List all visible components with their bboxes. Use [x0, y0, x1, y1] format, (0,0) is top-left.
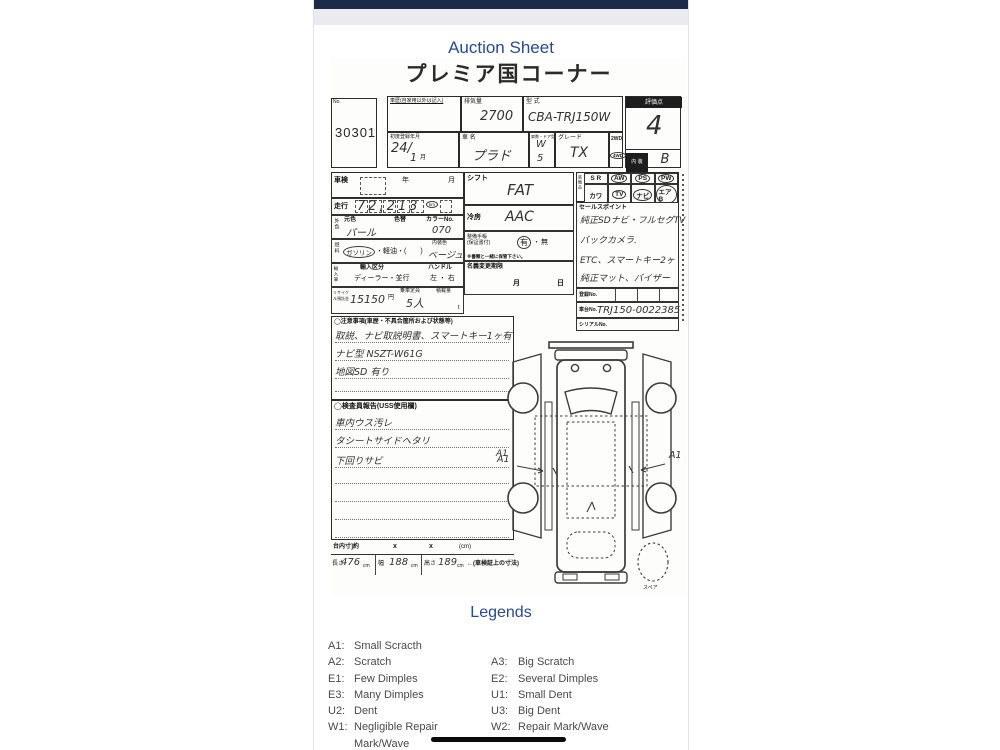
ac-label: 冷房: [467, 214, 481, 222]
legend-label: Repair Mark/Wave: [518, 719, 680, 750]
diagram-right-mark: A1: [669, 450, 682, 461]
warranty-no-option: 無: [541, 239, 548, 247]
diagram-left-mark: A1: [497, 454, 510, 465]
equipment-cells: S R AW PS PW カワ TV ナビ エアB: [584, 173, 678, 201]
registration-no-label: 登録No.: [579, 293, 597, 299]
capacity-label: 乗車定員: [400, 289, 420, 295]
equipment-grid: 装備品 S R AW PS PW カワ TV ナビ エアB: [576, 172, 679, 202]
notes-line: 地図SD 有り: [335, 364, 509, 379]
left-rear-wheel: [508, 483, 538, 513]
divider: [615, 289, 616, 301]
dim-cm-label: (cm): [459, 544, 471, 551]
equip-ps-label: PS: [635, 174, 650, 183]
shift-label: シフト: [467, 175, 488, 183]
base-color-value: パール: [346, 224, 376, 239]
auction-no-box: No. 30301: [331, 98, 377, 168]
legend-code: E1:: [328, 671, 354, 687]
inspection-year-label: 年: [402, 177, 409, 185]
displacement-value: 2700: [480, 109, 513, 124]
legend-code: E2:: [491, 671, 518, 687]
history-cell: 車歴(自家用以外は記入): [387, 96, 461, 132]
legend-label: Many Dimples: [354, 687, 477, 703]
dim-x1: x: [393, 543, 397, 551]
front-bumper: [555, 350, 627, 360]
legend-label: [518, 638, 680, 654]
chassis-no-label: 車台No.: [579, 308, 597, 314]
dimensions-area: 台内寸]約 x x (cm) 長さ 476 cm 幅 188 cm 高さ 189…: [331, 542, 514, 582]
color-change-label: 色替: [394, 217, 406, 224]
odometer-value: 72,213: [357, 199, 421, 214]
page-title: Auction Sheet: [314, 38, 688, 58]
warranty-note: ※書類と一緒に保管下さい。: [467, 254, 525, 260]
ton-label: t: [458, 305, 460, 312]
equip-sr-label: S R: [590, 175, 601, 182]
car-name-cell: 車 名 プラド: [459, 132, 529, 168]
divider: [375, 555, 376, 575]
odo-box: [440, 200, 452, 213]
width-unit: cm: [411, 564, 418, 570]
width-label: 幅: [378, 561, 384, 568]
legend-code: U2:: [328, 703, 354, 719]
grade-value: TX: [570, 145, 588, 161]
height-unit: cm: [457, 564, 464, 570]
interior-color-label: 内装色: [432, 241, 447, 247]
inspector-empty-line: [335, 523, 509, 538]
auction-sheet-scan: プレミア国コーナー No. 30301 車歴(自家用以外は記入) 排気量 270…: [331, 58, 687, 596]
sales-points-label: セールスポイント: [579, 205, 627, 212]
registration-no-cell: 登録No.: [576, 288, 679, 302]
interior-grade-label: 内 装: [626, 153, 648, 173]
legend-code: W1:: [328, 719, 354, 750]
drivetrain-4wd: 4WD: [610, 152, 626, 159]
legend-row: E1: Few Dimples E2: Several Dimples: [328, 671, 680, 687]
equip-pw: PW: [655, 173, 679, 184]
sales-points-box: セールスポイント 純正SDナビ・フルセグTV バックカメラ. ETC、スマートキ…: [576, 202, 679, 288]
sales-point-line: 純正マット、バイザー: [580, 271, 670, 284]
legend-label: Big Scratch: [518, 654, 680, 670]
transfer-day-label: 日: [557, 280, 564, 288]
first-registration-label: 初度登録年月: [390, 135, 420, 141]
legends-title: Legends: [314, 604, 688, 622]
transfer-month-label: 月: [513, 280, 520, 288]
legend-label: Scratch: [354, 654, 477, 670]
first-registration-month: 1: [410, 151, 417, 164]
screen: Auction Sheet プレミア国コーナー No. 30301 車歴(自家用…: [0, 0, 1000, 750]
right-sill: [632, 402, 639, 530]
history-label: 車歴(自家用以外は記入): [390, 99, 443, 105]
drivetrain-cell: 2WD 4WD: [609, 132, 623, 168]
load-label: 積載量: [436, 289, 451, 295]
fuel-other-options: ・軽油・( ): [376, 248, 423, 256]
door-type-n: 5: [537, 153, 543, 164]
shift-cell: シフト FAT: [464, 172, 574, 205]
color-no-value: 070: [432, 225, 451, 236]
odometer-cell: 走行 km 72,213: [331, 198, 464, 215]
auction-no-label: No.: [333, 100, 341, 106]
equip-aw-label: AW: [611, 174, 627, 183]
legend-row: U2: Dent U3: Big Dent: [328, 703, 680, 719]
legend-row: E3: Many Dimples U1: Small Dent: [328, 687, 680, 703]
import-type-label: 輸入区分: [360, 265, 384, 272]
inspector-empty-line: [335, 505, 509, 520]
ac-value: AAC: [505, 209, 534, 225]
grade-label: グレード: [558, 135, 582, 142]
notes-empty-line: [335, 379, 509, 392]
legend-code: A2:: [328, 654, 354, 670]
equip-sr: S R: [584, 173, 608, 184]
rear-mark: [587, 502, 595, 512]
color-no-label: カラーNo.: [426, 217, 454, 224]
notes-box: ◯注意事項(車歴・不具合箇所および状態等) 取説、ナビ取説明書、スマートキー1ヶ…: [331, 316, 514, 400]
interior-grade-row: 内 装 B: [626, 149, 680, 170]
car-name-value: プラド: [472, 145, 511, 164]
handle-options: 左 ・ 右: [430, 275, 455, 283]
margin-note: [682, 174, 684, 324]
serial-no-cell: シリアルNo.: [576, 318, 679, 331]
app-content-column: Auction Sheet プレミア国コーナー No. 30301 車歴(自家用…: [313, 0, 689, 750]
equip-navi-label: ナビ: [633, 189, 652, 201]
divider: [637, 289, 638, 301]
warranty-cell: 整備手帳 (保証書付) 有 ・ 無 ※書類と一緒に保管下さい。: [464, 231, 574, 261]
dim-x2: x: [429, 543, 433, 551]
recycle-cell: リサイクル預託金 15150 円 乗車定員 5人 積載量 t: [331, 287, 464, 314]
status-bar: [314, 0, 688, 9]
length-unit: cm: [363, 564, 370, 570]
right-front-wheel: [646, 383, 676, 413]
warranty-dot: ・: [533, 239, 540, 247]
legend-label: Several Dimples: [518, 671, 680, 687]
model-code-cell: 型 式 CBA-TRJ150W: [523, 96, 623, 132]
legend-code: U1:: [491, 687, 518, 703]
shift-value: FAT: [507, 181, 533, 199]
grade-cell: グレード TX: [555, 132, 609, 168]
right-arrow: [641, 464, 665, 470]
serial-no-label: シリアルNo.: [579, 323, 607, 329]
inspection-date-empty: [360, 177, 386, 195]
import-group-label: 輸入車: [333, 266, 339, 286]
car-diagram-svg: [501, 340, 683, 596]
rear-lamp-right: [605, 574, 619, 580]
notes-label: ◯注意事項(車歴・不具合箇所および状態等): [334, 319, 453, 326]
inspector-line: タシートサイドヘタリ: [335, 433, 509, 448]
right-rear-wheel: [646, 483, 676, 513]
equip-leather-label: カワ: [589, 190, 602, 200]
divider: [659, 289, 660, 301]
warranty-sub-label: (保証書付): [467, 241, 490, 247]
ac-cell: 冷房 AAC: [464, 205, 574, 231]
recycle-label: リサイクル預託金: [333, 290, 351, 302]
displacement-cell: 排気量 2700: [461, 96, 523, 132]
transfer-cell: 名義変更期限 月 日: [464, 261, 574, 295]
chassis-no-cell: 車台No. TRJ150-0022385: [576, 302, 679, 318]
equip-ps: PS: [631, 173, 655, 184]
inspector-report-box: ◯検査員報告(USS使用欄) 車内ウス汚レ タシートサイドヘタリ 下回りサビ A…: [331, 400, 514, 540]
transfer-label: 名義変更期限: [467, 264, 503, 271]
legend-code: U3:: [491, 703, 518, 719]
equip-tv-label: TV: [612, 190, 626, 199]
spare-tire-circle: [638, 543, 668, 581]
score-box: 評価点 4 内 装 B: [625, 96, 681, 168]
chassis-no-value: TRJ150-0022385: [597, 305, 680, 316]
sales-point-line: 純正SDナビ・フルセグTV: [580, 213, 685, 226]
notes-line: 取説、ナビ取説明書、スマートキー1ヶ有: [335, 328, 509, 343]
drivetrain-2wd: 2WD: [611, 136, 622, 142]
base-color-label: 元色: [344, 217, 356, 224]
score-value: 4: [646, 111, 663, 141]
rear-window: [567, 532, 615, 558]
sales-point-line: ETC、スマートキー2ヶ: [580, 253, 675, 266]
yen-label: 円: [388, 295, 394, 302]
capacity-value: 5人: [406, 295, 424, 311]
legends-list: A1: Small Scracth A2: Scratch A3: Big Sc…: [328, 638, 680, 750]
divider: [421, 555, 422, 575]
legend-code: A3:: [491, 654, 518, 670]
wiper-right: [603, 364, 610, 371]
legend-code: [491, 638, 518, 654]
sales-point-line: バックカメラ.: [580, 233, 637, 246]
equip-aw: AW: [608, 173, 632, 184]
left-front-wheel: [508, 383, 538, 413]
inspector-empty-line: [335, 469, 509, 484]
inspector-line: 下回りサビ: [335, 453, 509, 468]
header-bar: [314, 9, 688, 25]
fuel-cell: 燃料 ガソリン ・軽油・( ) 内装色 ベージュ: [331, 239, 464, 263]
auction-no: 30301: [335, 125, 376, 140]
legend-label: Small Scracth: [354, 638, 477, 654]
roof-bar: [549, 342, 633, 348]
exterior-color-group-label: 外色: [333, 218, 339, 238]
score-label: 評価点: [626, 97, 682, 108]
warranty-yes-option: 有: [517, 236, 531, 249]
first-registration-cell: 初度登録年月 24/ 1 月: [387, 132, 459, 168]
sheet-header: プレミア国コーナー: [331, 58, 687, 88]
month-unit-label: 月: [420, 155, 426, 162]
legend-label: Small Dent: [518, 687, 680, 703]
displacement-label: 排気量: [464, 99, 482, 106]
legend-row: W1: Negligible Repair Mark/Wave W2: Repa…: [328, 719, 680, 750]
dim-row: 長さ 476 cm 幅 188 cm 高さ 189 cm ←(車検証上の寸法): [331, 554, 514, 575]
spare-label: スペア: [643, 584, 658, 591]
car-name-label: 車 名: [462, 135, 476, 142]
handle-label: ハンドル: [428, 265, 452, 272]
legend-row: A2: Scratch A3: Big Scratch: [328, 654, 680, 670]
odometer-label: 走行: [334, 203, 348, 211]
inspector-empty-line: [335, 487, 509, 502]
windshield: [565, 388, 617, 414]
legend-row: A1: Small Scracth: [328, 638, 680, 654]
import-type-options: ディーラー・並行: [354, 275, 410, 283]
legend-code: W2:: [491, 719, 518, 750]
fuel-group-label: 燃料: [333, 242, 339, 262]
width-value: 188: [389, 557, 408, 568]
wiper-left: [571, 364, 578, 371]
car-damage-diagram: A1 A1 スペア: [501, 340, 683, 596]
import-cell: 輸入車 輸入区分 ディーラー・並行 ハンドル 左 ・ 右: [331, 263, 464, 287]
rear-lamp-left: [563, 574, 577, 580]
home-indicator[interactable]: [431, 737, 566, 742]
inspector-line: 車内ウス汚レ: [335, 415, 509, 430]
inspector-report-label: ◯検査員報告(USS使用欄): [334, 403, 417, 411]
notes-line: ナビ型 NSZT-W61G: [335, 346, 509, 361]
model-code-label: 型 式: [526, 99, 540, 106]
model-code-value: CBA-TRJ150W: [528, 110, 610, 124]
interior-grade-value: B: [660, 152, 669, 167]
legend-label: Few Dimples: [354, 671, 477, 687]
inspection-month-label: 月: [448, 177, 455, 185]
equipment-group-label: 装備品: [577, 175, 583, 201]
legend-label: Big Dent: [518, 703, 680, 719]
recycle-value: 15150: [350, 293, 385, 306]
odometer-unit: km: [426, 201, 438, 208]
legend-code: A1:: [328, 638, 354, 654]
fuel-gasoline-option: ガソリン: [343, 246, 375, 258]
height-value: 189: [438, 557, 457, 568]
door-type-w: W: [536, 139, 546, 150]
inspection-cell: 車検 年 月: [331, 172, 464, 198]
interior-color-value: ベージュ: [428, 248, 463, 261]
left-sill: [545, 402, 552, 530]
inner-dim-label: 台内寸]約: [333, 544, 359, 551]
equip-pw-label: PW: [658, 174, 674, 183]
legend-label: Negligible Repair Mark/Wave: [354, 719, 477, 750]
exterior-color-cell: 外色 元色 パール 色替 カラーNo. 070: [331, 215, 464, 239]
legend-code: E3:: [328, 687, 354, 703]
length-value: 476: [341, 557, 360, 568]
first-registration-year: 24/: [391, 141, 412, 156]
door-type-cell: 扉数・ドア型 W 5: [529, 132, 555, 168]
height-label: 高さ: [424, 561, 436, 568]
inspection-label: 車検: [334, 177, 348, 185]
legend-label: Dent: [354, 703, 477, 719]
